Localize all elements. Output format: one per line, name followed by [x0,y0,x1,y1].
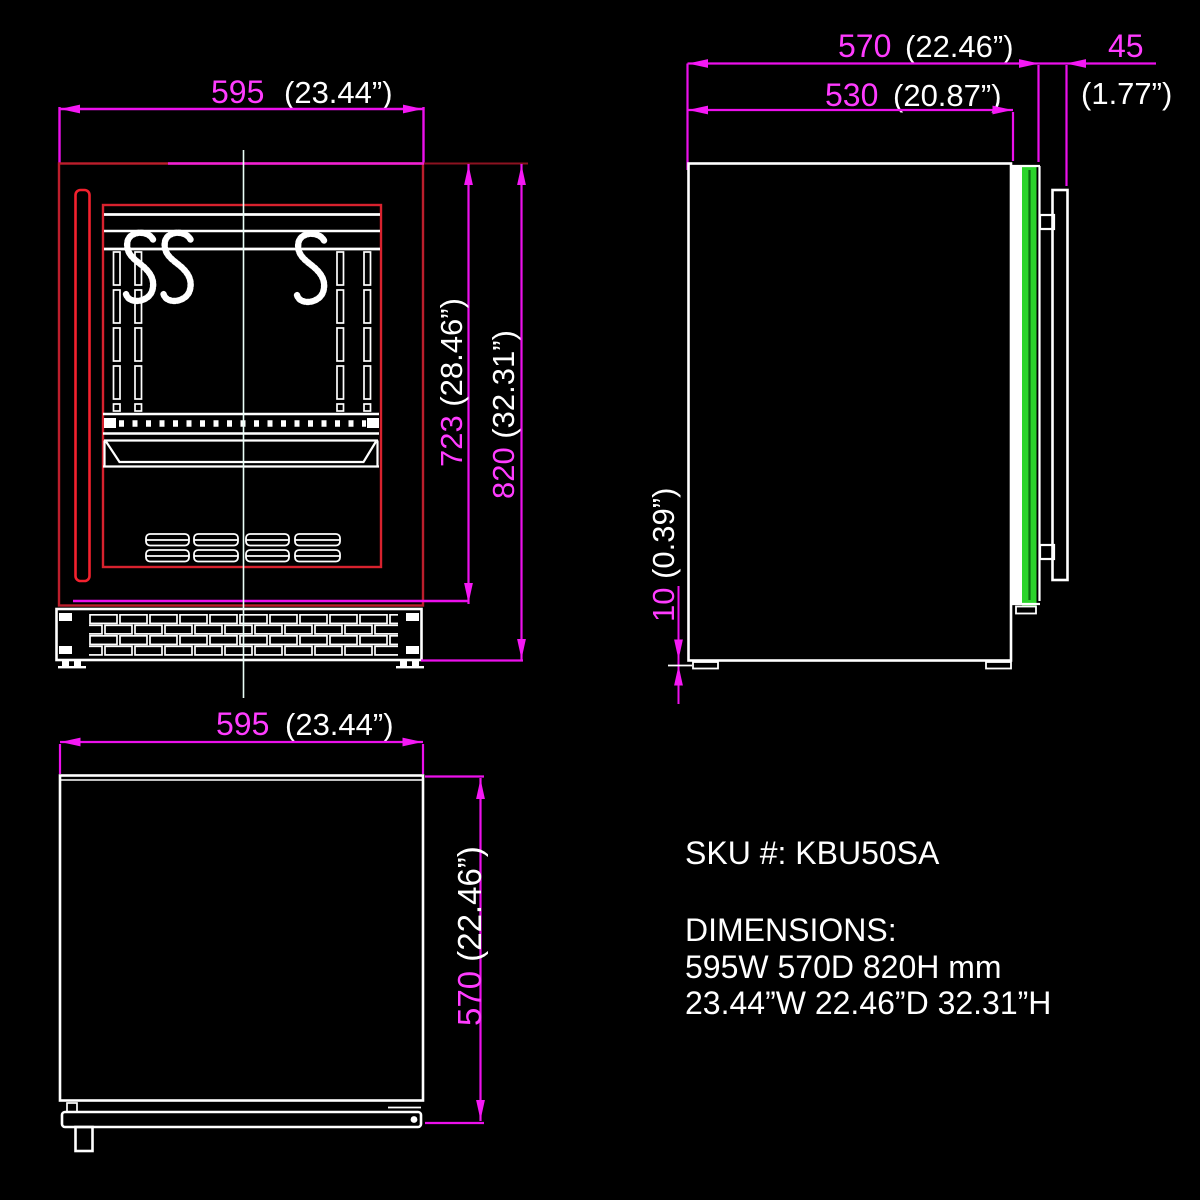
svg-text:SKU #: KBU50SA: SKU #: KBU50SA [685,835,940,871]
svg-text:DIMENSIONS:: DIMENSIONS: [685,912,897,948]
svg-text:10 (0.39”): 10 (0.39”) [646,488,681,622]
svg-text:(20.87”): (20.87”) [893,78,1002,113]
svg-text:23.44”W 22.46”D 32.31”H: 23.44”W 22.46”D 32.31”H [685,985,1051,1021]
svg-text:723 (28.46”): 723 (28.46”) [434,298,469,467]
svg-text:530: 530 [825,77,878,113]
svg-text:595: 595 [211,74,264,110]
svg-text:570 (22.46”): 570 (22.46”) [451,846,488,1026]
svg-text:45: 45 [1108,28,1144,64]
svg-text:570: 570 [838,28,891,64]
svg-text:820 (32.31”): 820 (32.31”) [486,330,521,499]
svg-text:(23.44”): (23.44”) [285,707,394,742]
svg-text:595: 595 [216,706,269,742]
svg-text:(23.44”): (23.44”) [284,75,393,110]
svg-text:(22.46”): (22.46”) [905,29,1014,64]
svg-text:(1.77”): (1.77”) [1081,76,1172,111]
svg-text:595W 570D 820H mm: 595W 570D 820H mm [685,949,1002,985]
